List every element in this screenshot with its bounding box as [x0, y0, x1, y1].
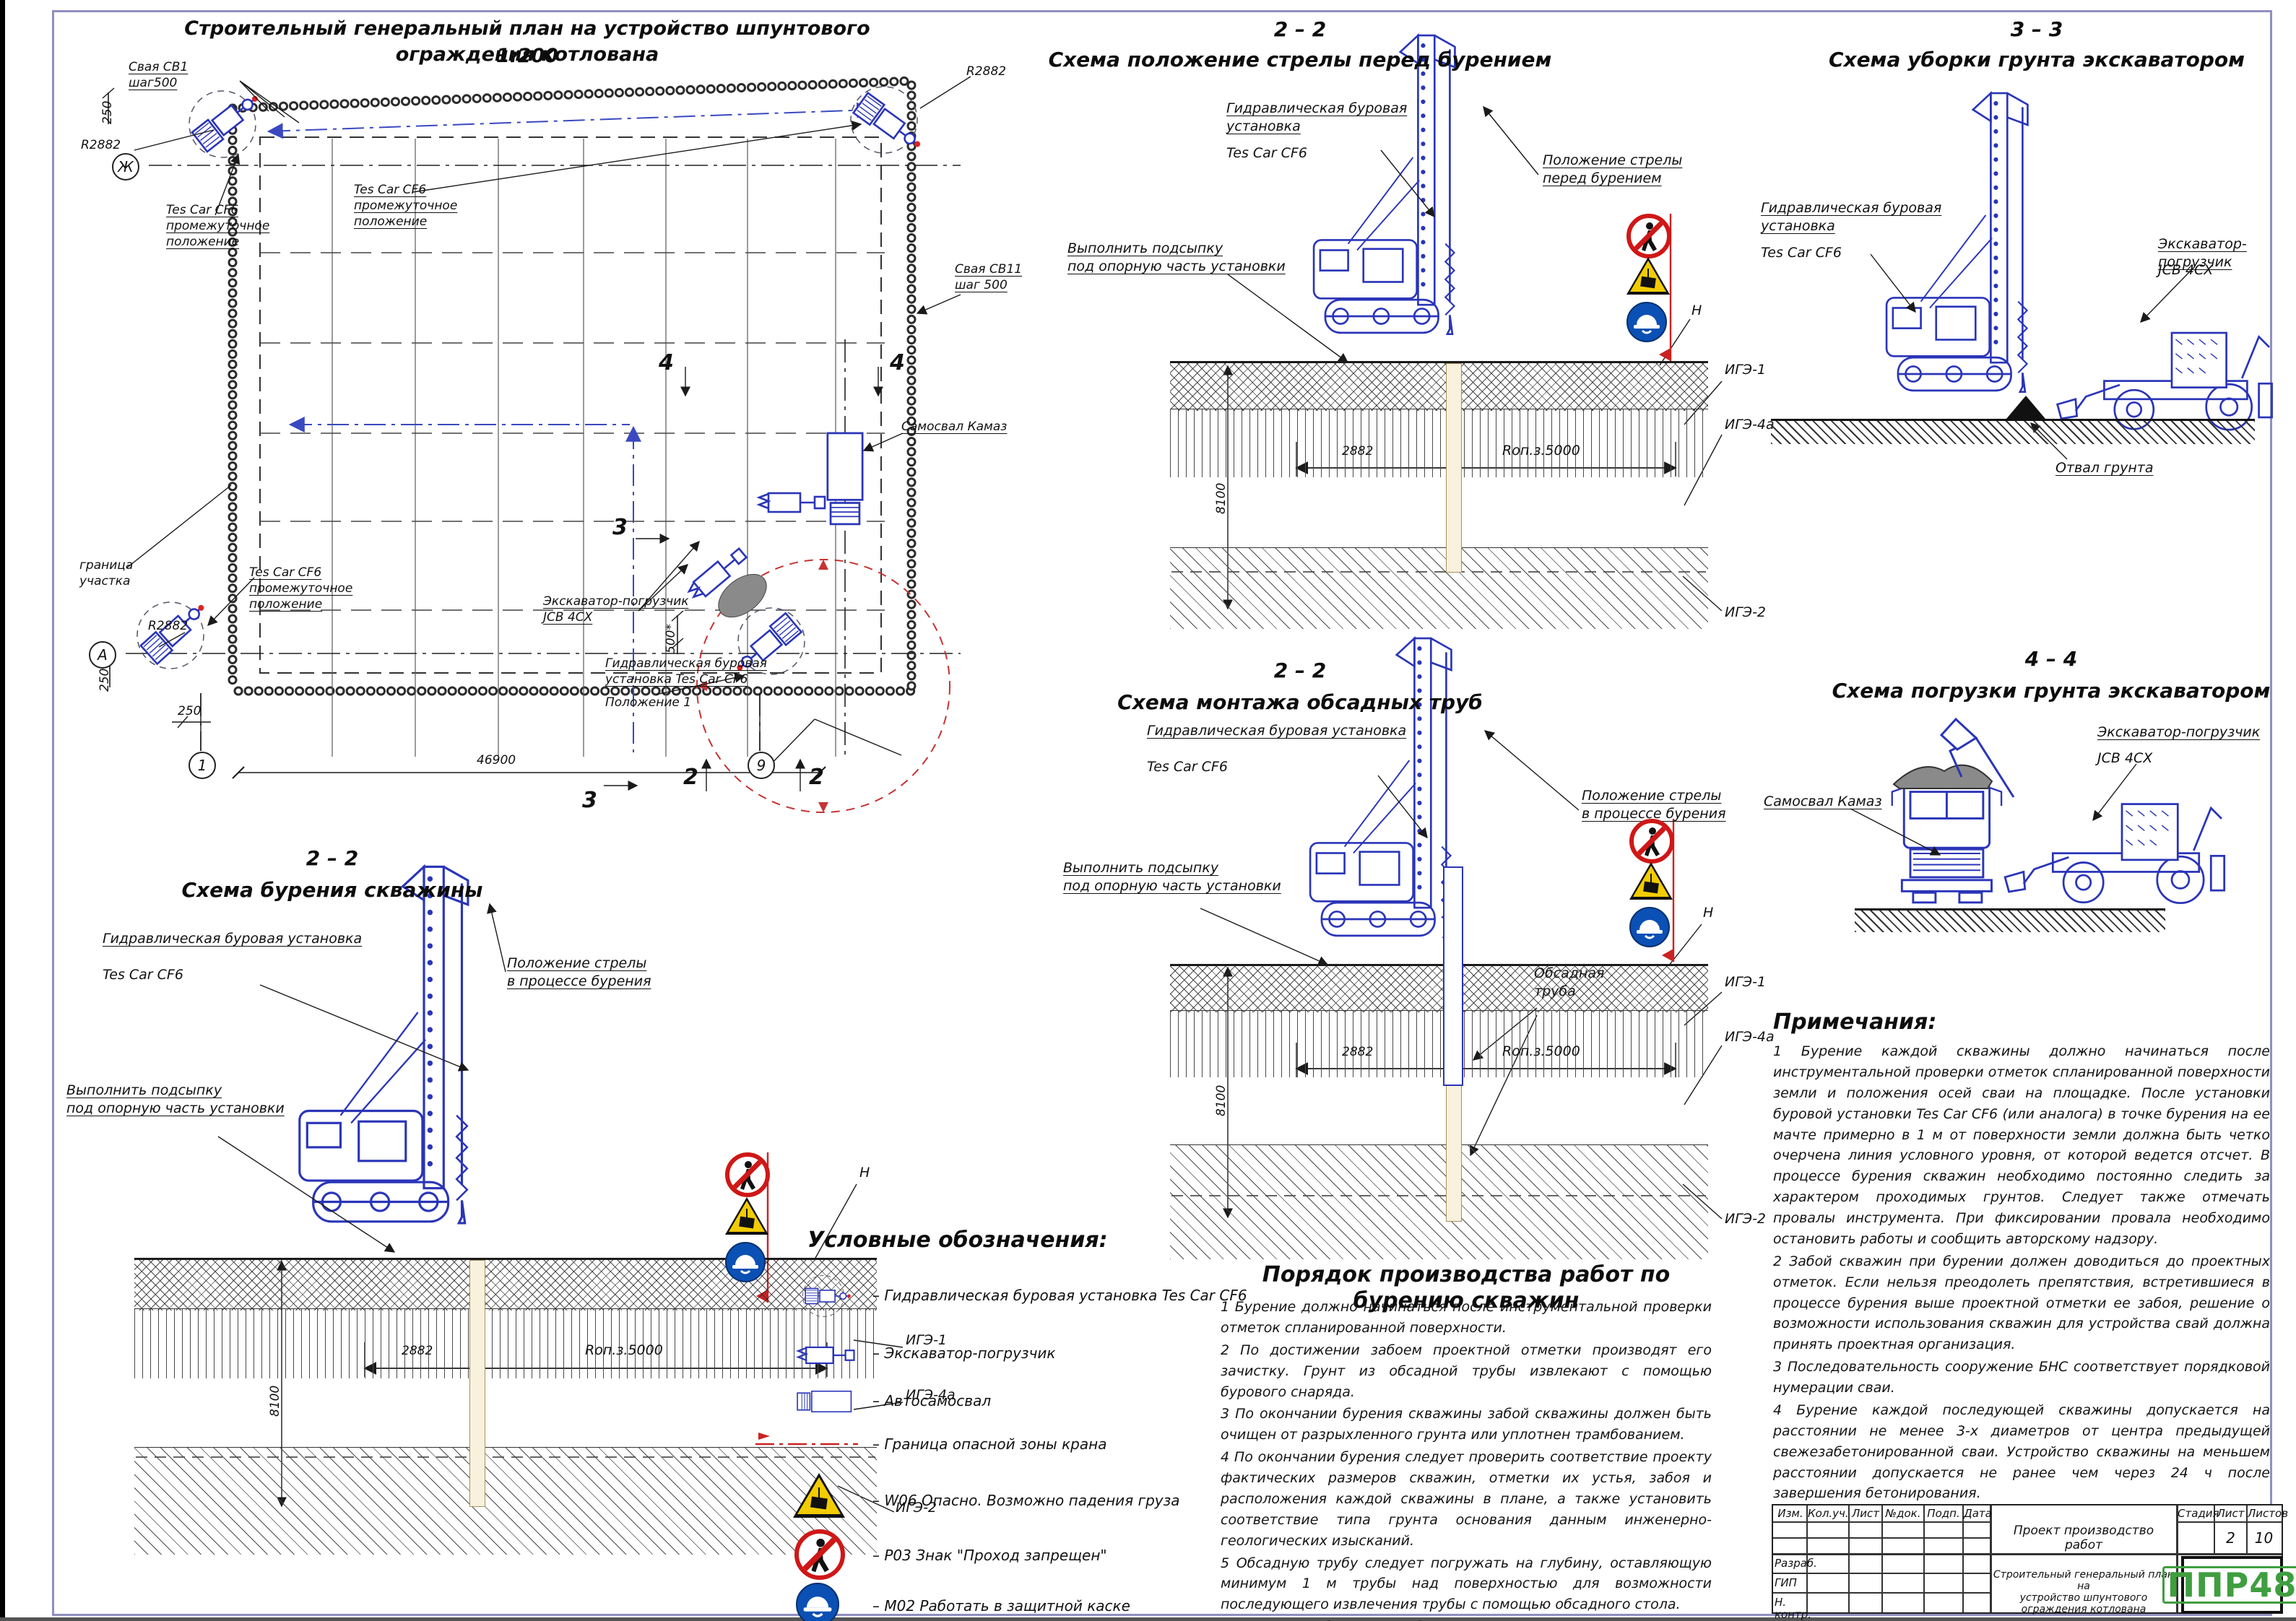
schema4-dim-2882: 2882 [1342, 1044, 1373, 1060]
tb-sheet-label: Лист [2215, 1508, 2246, 1520]
schema1-title: Схема положение стрелы перед бурением [1033, 45, 1567, 75]
schema3-title: Схема погрузки грунта экскаватором [1806, 676, 2296, 706]
schema1-dim-rop: Rоп.з.5000 [1502, 442, 1580, 460]
schema5-dim-rop: Rоп.з.5000 [585, 1342, 663, 1360]
schema2-rig-model: Tes Car CF6 [1761, 244, 1842, 262]
schema1-dim-8100: 8100 [1213, 483, 1229, 514]
legend-item-label: – Р03 Знак "Проход запрещен" [872, 1547, 1107, 1565]
schema1-ige2-label: ИГЭ-2 [1725, 604, 1766, 622]
plan-rig-position1-label: Гидравлическая буровая установка Tes Car… [605, 656, 767, 687]
plan-tescar-tl: Tes Car CF6 промежуточное положение [166, 202, 269, 250]
tb-col-doc: №док. [1883, 1508, 1923, 1520]
drawing-sheet: Строительный генеральный план на устройс… [0, 0, 2296, 1621]
no-pedestrian-sign-icon [725, 1152, 770, 1197]
title-block: Изм. Кол.уч. Лист №док. Подп. Дата Разра… [1772, 1504, 2283, 1614]
plan-dim-500: 500* [663, 624, 679, 653]
schema2-ground [1771, 419, 2255, 444]
helmet-mandatory-sign-icon [1629, 907, 1670, 947]
schema3-jcb-label: JCB 4CX [2097, 749, 2152, 768]
axis-circle-9: 9 [748, 752, 775, 779]
schema4-rig-model: Tes Car CF6 [1147, 758, 1228, 776]
schema5-rig-model: Tes Car CF6 [103, 966, 183, 984]
schema4-ige4a-label: ИГЭ-4а [1725, 1028, 1775, 1046]
no-pedestrian-sign-icon [1626, 214, 1671, 258]
note-item: 3 Последовательность сооружение БНС соот… [1773, 1357, 2270, 1399]
schema5-borehole [469, 1260, 485, 1507]
schema1-dim-2882: 2882 [1342, 443, 1373, 459]
schema5-dim-2882: 2882 [402, 1343, 433, 1359]
falling-load-warning-sign-icon [725, 1197, 768, 1235]
order-item: 1 Бурение должно начинаться после инстру… [1221, 1297, 1712, 1339]
schema1-fill-layer [1170, 361, 1708, 411]
helmet-mandatory-sign-icon [796, 1583, 839, 1621]
tb-row-gip: ГИП [1775, 1577, 1825, 1589]
plan-r2882-bl: R2882 [148, 618, 188, 634]
schema3-kamaz-label: Самосвал Камаз [1764, 793, 1882, 811]
drill-rig-plan-icon [780, 1271, 867, 1321]
schema5-number: 2 – 2 [188, 843, 477, 874]
schema4-podsypka-label: Выполнить подсыпку под опорную часть уст… [1063, 859, 1281, 895]
schema2-otval-label: Отвал грунта [2055, 459, 2153, 477]
plan-excavator-label: Экскаватор-погрузчик JCB 4CX [543, 594, 689, 625]
schema5-podsypka-label: Выполнить подсыпку под опорную часть уст… [66, 1082, 285, 1117]
plan-tescar-bl: Tes Car CF6 промежуточное положение [249, 565, 352, 612]
section-mark-3a: 3 [612, 517, 628, 539]
order-item: 2 По достижении забоем проектной отметки… [1221, 1340, 1712, 1403]
schema4-rig-label: Гидравлическая буровая установка [1147, 722, 1406, 740]
schema2-number: 3 – 3 [1892, 14, 2181, 45]
schema5-boom-label: Положение стрелы в процессе бурения [507, 955, 651, 990]
schema3-number: 4 – 4 [1907, 644, 2196, 674]
plan-kamaz-label: Самосвал Камаз [901, 419, 1007, 435]
tb-row-nkontr: Н. контр. [1775, 1596, 1825, 1621]
falling-load-warning-sign-icon [1629, 862, 1673, 900]
helmet-mandatory-sign-icon [725, 1242, 766, 1282]
schema2-jcb-label: JCB 4CX [2158, 261, 2213, 279]
schema4-ige1-label: ИГЭ-1 [1725, 973, 1766, 991]
schema2-title: Схема уборки грунта экскаватором [1791, 45, 2282, 75]
falling-load-warning-sign-icon [793, 1473, 845, 1518]
schema4-ige2-label: ИГЭ-2 [1725, 1210, 1766, 1228]
schema4-h-mark: Н [1703, 904, 1713, 922]
schema3-ground [1855, 908, 2165, 932]
order-item: 5 Обсадную трубу следует погружать на гл… [1221, 1553, 1712, 1616]
schema3-excavator-label: Экскаватор-погрузчик [2097, 723, 2260, 742]
plan-dim-46900: 46900 [477, 752, 516, 768]
plan-position1-label: Положение 1 [605, 695, 691, 710]
schema1-rig-label: Гидравлическая буровая установка [1226, 100, 1407, 135]
schema1-ige1-label: ИГЭ-1 [1725, 361, 1766, 379]
schema4-dim-rop: Rоп.з.5000 [1502, 1043, 1580, 1061]
legend-item-label: – W06 Опасно. Возможно падения груза [872, 1492, 1180, 1510]
note-item: 2 Забой скважин при бурении должен довод… [1773, 1251, 2270, 1355]
schema5-dim-8100: 8100 [267, 1386, 283, 1417]
plan-pile-sv1-label: Свая СВ1 шаг500 [129, 59, 188, 91]
legend-item-label: – Экскаватор-погрузчик [872, 1344, 1055, 1363]
schema1-boom-label: Положение стрелы перед бурением [1543, 152, 1682, 187]
order-item: 6 В процессе бурения необходимо визуальн… [1221, 1617, 1712, 1621]
legend-item-label: – Автосамосвал [872, 1392, 991, 1410]
note-item: 4 Бурение каждой последующей скважины до… [1773, 1400, 2270, 1504]
tb-row-razrab: Разраб. [1775, 1557, 1825, 1570]
main-scale: 1:200 [130, 43, 924, 69]
dump-truck-plan-icon [780, 1385, 867, 1418]
tb-col-izm: Изм. [1775, 1508, 1806, 1520]
schema1-podsypka-label: Выполнить подсыпку под опорную часть уст… [1067, 240, 1286, 275]
schema5-h-mark: Н [859, 1164, 870, 1182]
tb-sheets-label: Листов [2248, 1508, 2280, 1520]
schema1-borehole [1446, 363, 1462, 573]
tb-col-podp: Подп. [1925, 1508, 1962, 1520]
plan-dim-250-bl: 250 [97, 669, 113, 692]
schema4-fill-layer [1170, 964, 1708, 1012]
schema5-rig-label: Гидравлическая буровая установка [103, 930, 362, 948]
tb-sheets-total: 10 [2248, 1530, 2280, 1547]
schema5-fill-layer [134, 1258, 877, 1311]
legend-item-label: – Гидравлическая буровая установка Tes C… [872, 1287, 1247, 1305]
tb-col-kol: Кол.уч. [1808, 1508, 1848, 1520]
plan-r2882-tr: R2882 [966, 64, 1006, 79]
schema4-boom-label: Положение стрелы в процессе бурения [1582, 787, 1726, 822]
axis-circle-1: 1 [189, 752, 216, 779]
schema1-ige4a-label: ИГЭ-4а [1725, 416, 1775, 434]
section-mark-2a: 2 [683, 767, 698, 788]
plan-r2882-tl: R2882 [81, 137, 121, 153]
order-text: 1 Бурение должно начинаться после инстру… [1221, 1297, 1712, 1621]
notes-text: 1 Бурение каждой скважины должно начинат… [1773, 1041, 2270, 1549]
tb-sheet-number: 2 [2215, 1530, 2246, 1547]
order-item: 3 По окончании бурения скважины забой ск… [1221, 1404, 1712, 1446]
section-mark-2b: 2 [809, 767, 824, 788]
tb-col-list: Лист [1850, 1508, 1881, 1520]
section-mark-4b: 4 [890, 352, 905, 374]
schema1-ige2-layer [1170, 547, 1708, 629]
section-mark-3b: 3 [582, 790, 597, 812]
helmet-mandatory-sign-icon [1626, 302, 1667, 342]
falling-load-warning-sign-icon [1626, 257, 1670, 295]
excavator-plan-icon [780, 1337, 867, 1373]
notes-title: Примечания: [1773, 1009, 1936, 1035]
axis-circle-j: Ж [112, 153, 139, 181]
crane-danger-zone-line-icon [751, 1431, 859, 1453]
schema1-ige1-layer [1170, 409, 1708, 477]
plan-site-border-left: граница участка [79, 557, 133, 589]
section-mark-4a: 4 [659, 352, 674, 374]
plan-dim-250-b: 250 [178, 703, 201, 719]
legend-item-label: – М02 Работать в защитной каске [872, 1597, 1130, 1615]
schema4-number: 2 – 2 [1156, 656, 1444, 686]
legend-item-label: – Граница опасной зоны крана [872, 1435, 1106, 1453]
schema2-rig-label: Гидравлическая буровая установка [1761, 199, 1941, 235]
schema4-ige2-layer [1170, 1144, 1708, 1259]
order-item: 4 По окончании бурения следует проверить… [1221, 1447, 1712, 1551]
no-pedestrian-sign-icon [794, 1529, 845, 1580]
tb-col-data: Дата [1964, 1508, 1990, 1520]
legend-title: Условные обозначения: [807, 1227, 1108, 1253]
no-pedestrian-sign-icon [1629, 819, 1674, 864]
schema1-rig-model: Tes Car CF6 [1226, 144, 1307, 162]
tb-stage-label: Стадия [2178, 1508, 2214, 1520]
schema1-h-mark: Н [1691, 302, 1702, 320]
plan-dim-250-top: 250 [100, 101, 116, 124]
schema4-dim-8100: 8100 [1213, 1085, 1229, 1116]
plan-tescar-tr: Tes Car CF6 промежуточное положение [354, 182, 457, 230]
note-item: 1 Бурение каждой скважины должно начинат… [1773, 1041, 2270, 1250]
schema5-ige1-layer [134, 1308, 877, 1378]
tb-document-name: Строительный генеральный план на устройс… [1993, 1569, 2175, 1615]
schema4-casing-pipe [1443, 866, 1463, 1086]
schema5-ige2-layer [134, 1447, 877, 1555]
ppr48-logo: ППР48 [2181, 1556, 2283, 1614]
plan-pile-sv11-label: Свая СВ11 шаг 500 [955, 261, 1022, 293]
schema4-title: Схема монтажа обсадных труб [1069, 687, 1531, 718]
tb-project-name: Проект производство работ [1994, 1524, 2173, 1552]
schema1-number: 2 – 2 [1156, 14, 1444, 45]
schema5-title: Схема бурения скважины [116, 875, 549, 905]
schema4-ige1-layer [1170, 1010, 1708, 1077]
axis-circle-a: А [89, 641, 116, 669]
